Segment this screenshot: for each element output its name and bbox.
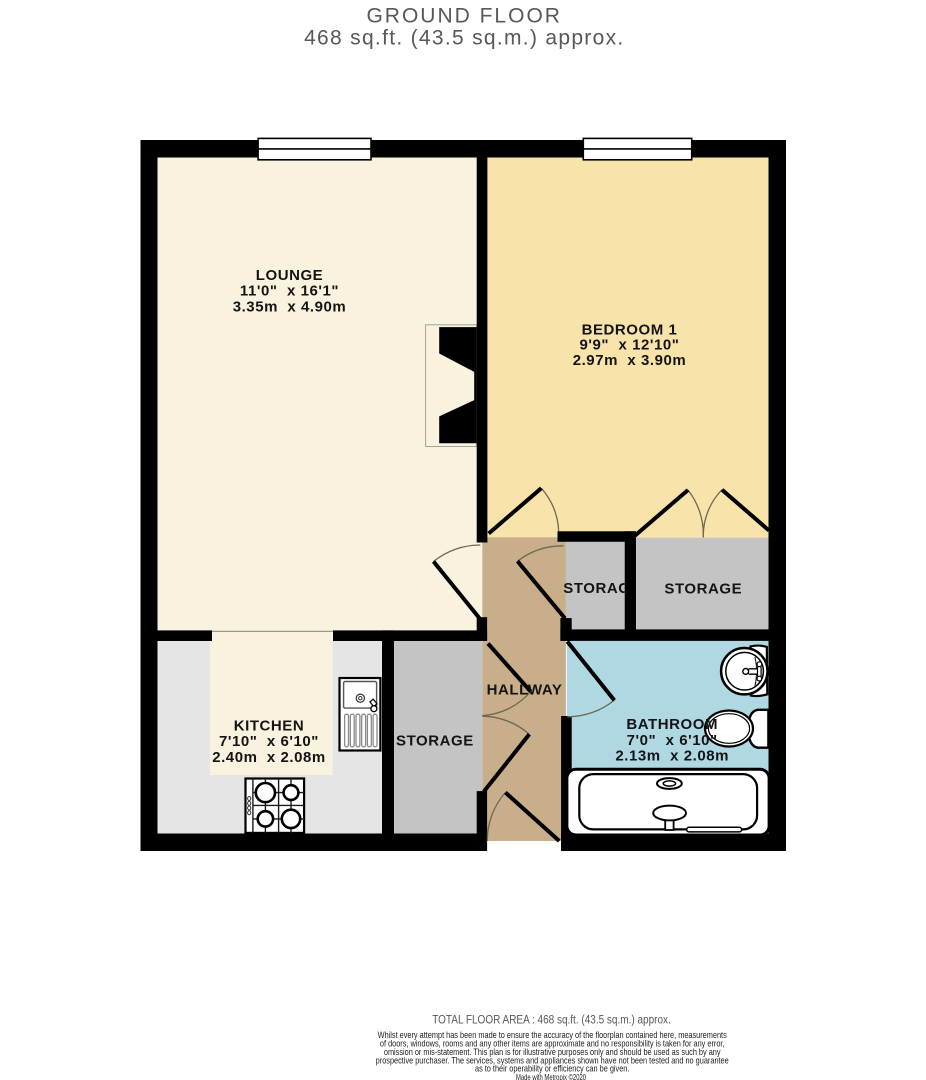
- svg-text:STORAGE: STORAGE: [396, 733, 474, 750]
- svg-text:GROUND FLOOR: GROUND FLOOR: [366, 5, 562, 28]
- svg-text:3.35m x 4.90m: 3.35m x 4.90m: [233, 298, 347, 315]
- svg-text:STORAGE: STORAGE: [664, 580, 742, 597]
- svg-text:BATHROOM: BATHROOM: [626, 716, 718, 733]
- svg-text:KITCHEN: KITCHEN: [234, 717, 305, 734]
- svg-text:Made with Metropix ©2020: Made with Metropix ©2020: [516, 1072, 586, 1080]
- svg-text:TOTAL FLOOR AREA : 468 sq.ft.: TOTAL FLOOR AREA : 468 sq.ft. (43.5 sq.m…: [432, 1014, 671, 1027]
- svg-text:7'10" x 6'10": 7'10" x 6'10": [219, 733, 319, 750]
- svg-text:2.13m x 2.08m: 2.13m x 2.08m: [615, 748, 729, 765]
- svg-text:2.40m x 2.08m: 2.40m x 2.08m: [212, 749, 326, 766]
- svg-text:7'0" x 6'10": 7'0" x 6'10": [627, 732, 718, 749]
- svg-text:2.97m x 3.90m: 2.97m x 3.90m: [573, 352, 687, 369]
- svg-text:LOUNGE: LOUNGE: [256, 267, 323, 284]
- svg-text:HALLWAY: HALLWAY: [487, 681, 563, 698]
- svg-text:468 sq.ft. (43.5 sq.m.) approx: 468 sq.ft. (43.5 sq.m.) approx.: [304, 26, 624, 49]
- svg-text:11'0" x 16'1": 11'0" x 16'1": [240, 283, 339, 300]
